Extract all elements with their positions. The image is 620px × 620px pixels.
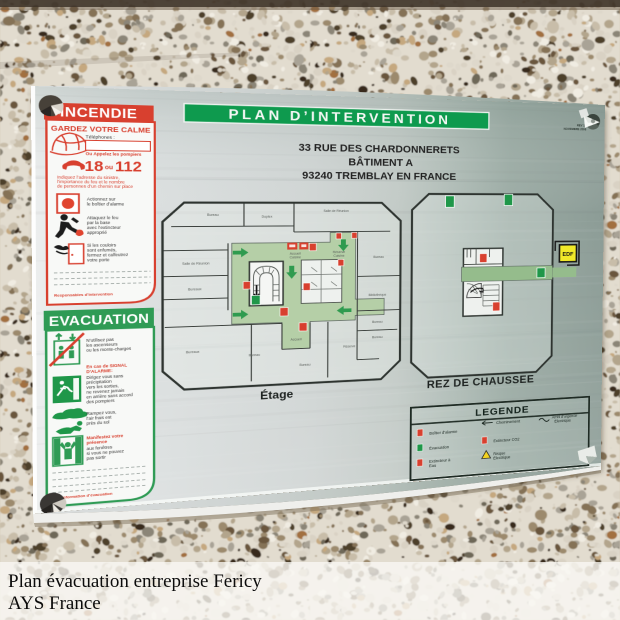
- svg-text:Réserve: Réserve: [343, 345, 355, 349]
- svg-text:INCENDIE: INCENDIE: [60, 106, 137, 122]
- svg-text:93240 TREMBLAY EN FRANCE: 93240 TREMBLAY EN FRANCE: [302, 169, 456, 182]
- svg-text:Ou Appelez les pompiers: Ou Appelez les pompiers: [86, 152, 142, 157]
- svg-text:Bureaux: Bureaux: [186, 350, 200, 354]
- svg-text:Attaquez le feu: Attaquez le feu: [87, 216, 119, 221]
- svg-text:Bureau: Bureau: [249, 353, 260, 357]
- svg-text:Eau: Eau: [429, 463, 436, 468]
- svg-text:votre porte: votre porte: [87, 258, 110, 263]
- svg-text:par la base: par la base: [87, 221, 111, 226]
- svg-text:Téléphones :: Téléphones :: [86, 135, 115, 141]
- svg-text:BÂTIMENT A: BÂTIMENT A: [348, 155, 413, 168]
- svg-text:18: 18: [84, 157, 103, 174]
- svg-text:Cuisine: Cuisine: [333, 254, 344, 257]
- svg-text:Bureau: Bureau: [372, 335, 382, 339]
- svg-text:Bureau: Bureau: [373, 255, 383, 258]
- svg-text:Étage: Étage: [260, 388, 293, 402]
- svg-text:Salle de Réunion: Salle de Réunion: [323, 209, 348, 212]
- svg-text:Salle de Réunion: Salle de Réunion: [182, 262, 210, 266]
- svg-text:112: 112: [115, 158, 142, 175]
- svg-text:Bibliothèque: Bibliothèque: [369, 293, 387, 297]
- svg-text:33 RUE DES CHARDONNERETS: 33 RUE DES CHARDONNERETS: [299, 141, 460, 155]
- svg-text:EDF: EDF: [562, 251, 574, 257]
- svg-text:Bureau: Bureau: [300, 363, 311, 367]
- svg-text:NOVEMBRE 2008: NOVEMBRE 2008: [564, 127, 587, 131]
- svg-text:Accueil: Accueil: [291, 338, 302, 342]
- svg-text:approprié: approprié: [87, 230, 107, 235]
- svg-text:Bureau: Bureau: [207, 213, 219, 216]
- svg-text:de personnes d’un chemin sur p: de personnes d’un chemin sur place: [57, 184, 133, 189]
- svg-text:Duplex: Duplex: [262, 215, 273, 218]
- svg-text:avec l’extincteur: avec l’extincteur: [87, 225, 121, 230]
- svg-text:Cuisine: Cuisine: [290, 256, 301, 260]
- svg-text:Bureau: Bureau: [372, 320, 382, 324]
- svg-text:ou: ou: [105, 165, 113, 171]
- svg-text:Bureaux: Bureaux: [188, 288, 202, 292]
- svg-text:le boîtier d’alarme: le boîtier d’alarme: [87, 202, 125, 206]
- svg-text:Actionnez sur: Actionnez sur: [87, 197, 116, 202]
